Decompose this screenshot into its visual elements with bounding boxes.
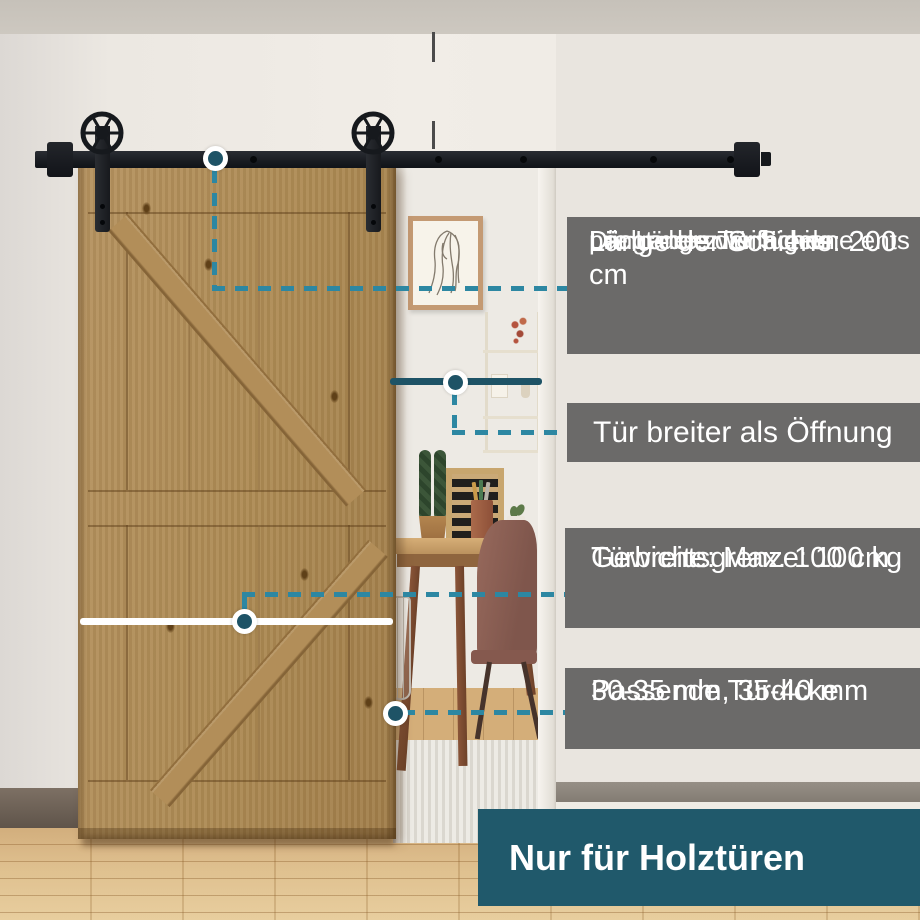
wood-knot xyxy=(142,202,151,215)
door-brace-bottom xyxy=(150,540,388,807)
door-seam xyxy=(88,780,386,782)
rail-bolt xyxy=(520,156,527,163)
plant-stem xyxy=(434,450,446,520)
ceiling xyxy=(0,0,920,34)
door-seam xyxy=(348,212,350,490)
callout-weight-limit: Gewichtsgrenze: 100 kg Türbreite: Max. 1… xyxy=(565,528,920,628)
braided-cactus-plant xyxy=(419,450,447,520)
chair-seat xyxy=(471,650,537,664)
left-baseboard xyxy=(0,788,84,828)
wood-doors-only-banner: Nur für Holztüren xyxy=(478,809,920,906)
leader-line-thickness xyxy=(402,710,565,715)
plant-stem xyxy=(419,450,431,520)
chair-backrest xyxy=(477,520,537,658)
strap-bolt xyxy=(100,220,105,225)
callout-door-wider: Tür breiter als Öffnung xyxy=(567,403,920,462)
center-mark-dash xyxy=(432,121,435,149)
shelf-board xyxy=(483,350,539,353)
wood-knot xyxy=(330,390,339,403)
roller-wheel-icon xyxy=(80,111,124,155)
shelf-board xyxy=(483,450,539,453)
callout-dot-icon xyxy=(203,146,228,171)
door-seam xyxy=(88,525,386,527)
door-width-line: Türbreite: Max. 100 cm xyxy=(591,538,889,579)
door-floor-shadow xyxy=(82,836,394,846)
callout-door-thickness: Passende Türdicke 30-35 mm, 35-40 mm xyxy=(565,668,920,749)
plank-line xyxy=(188,214,190,490)
callout-dot-icon xyxy=(443,370,468,395)
red-leaf-plant xyxy=(509,314,529,350)
doorway-room-view xyxy=(393,168,556,843)
right-baseboard xyxy=(556,782,920,802)
door-brace-top xyxy=(108,214,366,507)
plank-line xyxy=(258,214,260,490)
callout-rail-length: Länge der Schiene: 200 cm Die Länge der … xyxy=(567,217,920,354)
rail-bolt xyxy=(727,156,734,163)
callout-dot-icon xyxy=(232,609,257,634)
wood-knot xyxy=(364,696,373,709)
leader-line-weight xyxy=(242,592,565,597)
rail-length-desc-line: Länge des Türflügels xyxy=(589,226,831,255)
leader-line-rail-length xyxy=(212,170,217,290)
plank-line xyxy=(188,527,190,780)
leader-line-door-wider xyxy=(452,392,457,434)
rail-end-tab xyxy=(761,152,771,166)
strap-bolt xyxy=(100,204,105,209)
doorway-jamb xyxy=(538,168,556,843)
rail-end-stop-right xyxy=(734,142,760,177)
leader-line-rail-length xyxy=(212,286,567,291)
door-seam xyxy=(126,525,128,780)
wood-knot xyxy=(300,568,309,581)
rail-bolt xyxy=(435,156,442,163)
thickness-line: 30-35 mm, 35-40 mm xyxy=(591,674,868,709)
plank-line xyxy=(258,527,260,780)
door-edge xyxy=(78,168,87,839)
door-edge xyxy=(386,168,396,839)
door-seam xyxy=(88,212,386,214)
wooden-barn-door xyxy=(78,168,396,839)
pencil xyxy=(479,480,483,500)
rail-bolt xyxy=(650,156,657,163)
callout-dot-icon xyxy=(383,701,408,726)
sketch-portrait-icon xyxy=(413,221,478,305)
roller-wheel-icon xyxy=(351,111,395,155)
leader-line-door-wider xyxy=(452,430,567,435)
rail-bolt xyxy=(250,156,257,163)
shelf-board xyxy=(483,416,539,419)
strap-bolt xyxy=(371,220,376,225)
wall-picture xyxy=(408,216,483,310)
barn-door-product-infographic: Länge der Schiene: 200 cm Die Länge der … xyxy=(0,0,920,920)
center-mark-dash xyxy=(432,32,435,62)
rail-end-stop-left xyxy=(47,142,73,177)
strap-bolt xyxy=(371,204,376,209)
